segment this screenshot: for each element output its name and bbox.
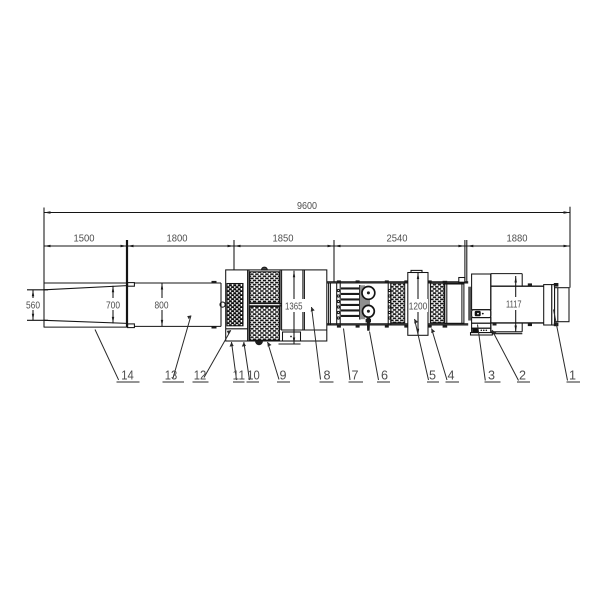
svg-text:12: 12	[194, 369, 207, 383]
svg-text:13: 13	[165, 369, 178, 383]
svg-text:1: 1	[569, 369, 576, 383]
svg-text:3: 3	[488, 369, 495, 383]
svg-text:1500: 1500	[74, 234, 95, 245]
svg-text:1880: 1880	[507, 234, 528, 245]
svg-text:560: 560	[26, 301, 40, 312]
svg-text:1117: 1117	[506, 300, 522, 311]
svg-text:8: 8	[323, 369, 330, 383]
svg-text:6: 6	[381, 369, 388, 383]
svg-text:9600: 9600	[297, 201, 317, 212]
svg-text:800: 800	[155, 301, 169, 312]
svg-text:14: 14	[121, 369, 134, 383]
svg-text:7: 7	[351, 369, 358, 383]
svg-text:1200: 1200	[409, 302, 428, 313]
svg-text:4: 4	[447, 369, 454, 383]
svg-text:1850: 1850	[273, 234, 294, 245]
svg-text:2: 2	[519, 369, 526, 383]
svg-text:1365: 1365	[285, 302, 303, 313]
svg-text:700: 700	[106, 301, 120, 312]
svg-text:1800: 1800	[167, 234, 188, 245]
svg-text:2540: 2540	[387, 234, 408, 245]
svg-text:5: 5	[429, 369, 436, 383]
svg-text:11: 11	[233, 369, 246, 383]
svg-text:9: 9	[279, 369, 286, 383]
svg-text:10: 10	[247, 369, 260, 383]
